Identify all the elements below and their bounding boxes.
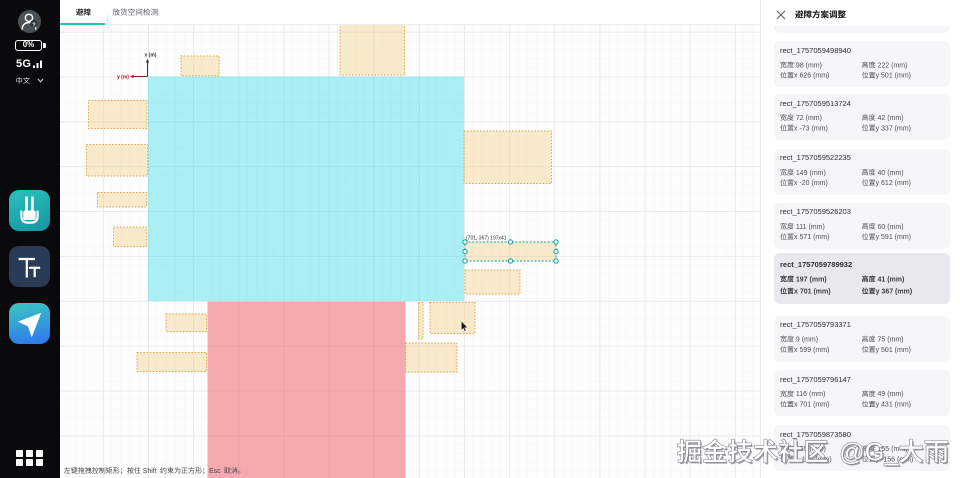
svg-text:y (m): y (m): [117, 75, 129, 81]
svg-text:?: ?: [32, 22, 36, 28]
svg-text:x (m): x (m): [145, 53, 157, 59]
svg-text:(701, 367) 197x41: (701, 367) 197x41: [466, 236, 507, 242]
